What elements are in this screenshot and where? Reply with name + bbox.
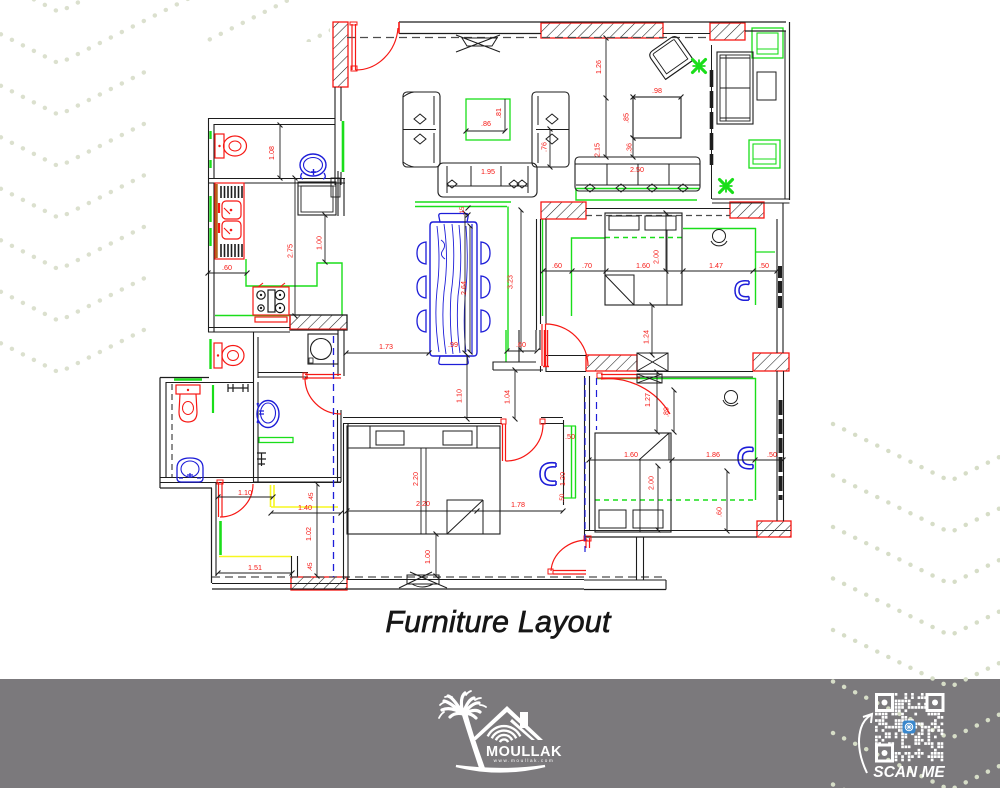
svg-text:2.20: 2.20: [411, 472, 420, 486]
svg-text:2.64: 2.64: [459, 281, 468, 295]
svg-text:2.15: 2.15: [593, 143, 602, 157]
svg-text:.45: .45: [307, 562, 314, 571]
svg-text:2.20: 2.20: [416, 499, 430, 508]
svg-text:Furniture Layout: Furniture Layout: [385, 605, 612, 639]
svg-text:1.60: 1.60: [636, 261, 650, 270]
svg-text:1.20: 1.20: [558, 472, 567, 486]
svg-text:.60: .60: [715, 507, 724, 517]
svg-text:.76: .76: [540, 142, 549, 152]
svg-text:.45: .45: [308, 492, 315, 501]
svg-text:1.10: 1.10: [238, 488, 252, 497]
svg-text:.99: .99: [448, 340, 458, 349]
svg-text:3.23: 3.23: [506, 275, 515, 289]
svg-text:2.00: 2.00: [652, 250, 661, 264]
svg-text:1.24: 1.24: [642, 330, 651, 344]
svg-text:1.08: 1.08: [267, 146, 276, 160]
svg-text:1.02: 1.02: [304, 527, 313, 541]
svg-text:2.00: 2.00: [647, 476, 656, 490]
svg-text:.50: .50: [767, 450, 777, 459]
svg-text:1.40: 1.40: [298, 503, 312, 512]
svg-text:1.51: 1.51: [248, 563, 262, 572]
svg-text:1.00: 1.00: [315, 236, 324, 250]
svg-text:.85: .85: [622, 113, 631, 123]
svg-text:.70: .70: [582, 261, 592, 270]
svg-text:2.75: 2.75: [286, 244, 295, 258]
svg-text:1.78: 1.78: [511, 500, 525, 509]
svg-text:.60: .60: [552, 261, 562, 270]
svg-text:.81: .81: [494, 108, 503, 118]
svg-text:1.27: 1.27: [643, 393, 652, 407]
svg-text:1.47: 1.47: [709, 261, 723, 270]
svg-text:www.moullak.com: www.moullak.com: [494, 758, 555, 763]
svg-text:1.86: 1.86: [706, 450, 720, 459]
svg-text:1.10: 1.10: [455, 389, 464, 403]
svg-text:1.00: 1.00: [423, 550, 432, 564]
svg-text:1.04: 1.04: [503, 390, 512, 404]
svg-text:.15: .15: [459, 206, 466, 215]
svg-text:.89: .89: [662, 407, 671, 417]
svg-text:.60: .60: [222, 263, 232, 272]
svg-text:SCAN ME: SCAN ME: [873, 764, 945, 781]
svg-text:.50: .50: [559, 493, 566, 502]
svg-text:.60: .60: [516, 340, 526, 349]
svg-text:1.26: 1.26: [594, 60, 603, 74]
svg-text:.98: .98: [652, 86, 662, 95]
svg-text:.50: .50: [565, 432, 575, 441]
svg-text:1.73: 1.73: [379, 342, 393, 351]
svg-text:.36: .36: [625, 143, 634, 153]
svg-text:1.95: 1.95: [481, 167, 495, 176]
svg-text:1.60: 1.60: [624, 450, 638, 459]
svg-text:.50: .50: [759, 261, 769, 270]
svg-text:2.50: 2.50: [630, 165, 644, 174]
svg-text:.86: .86: [481, 119, 491, 128]
